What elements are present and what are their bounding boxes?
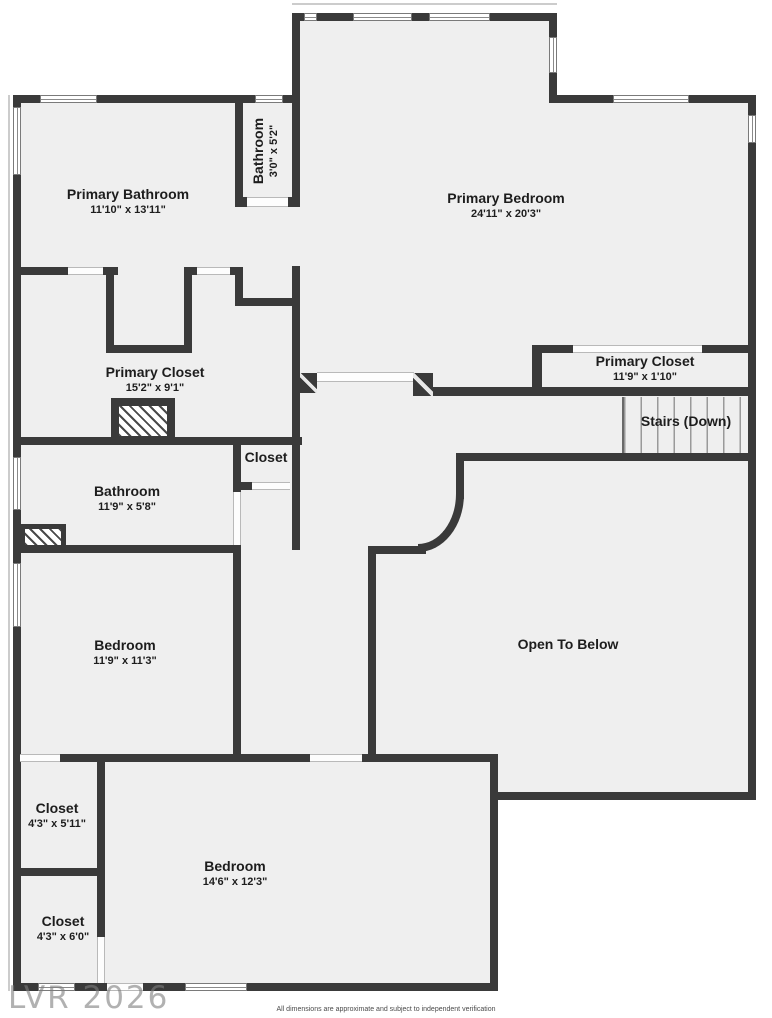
room-dims: 14'6" x 12'3" (203, 876, 268, 889)
room-dims: 4'3" x 6'0" (37, 931, 89, 944)
room-dims: 15'2" x 9'1" (106, 382, 205, 395)
door-opening (97, 937, 105, 983)
room-label-closet-lower: Closet 4'3" x 6'0" (37, 914, 89, 944)
room-name: Primary Closet (596, 354, 695, 370)
wall (292, 95, 300, 207)
wall (235, 95, 243, 200)
window-icon (549, 37, 557, 73)
room-name: Bathroom (94, 484, 160, 500)
room-label-primary-closet-left: Primary Closet 15'2" x 9'1" (106, 365, 205, 395)
window-icon (429, 13, 490, 21)
room-label-primary-closet-right: Primary Closet 11'9" x 1'10" (596, 354, 695, 384)
wall (292, 13, 557, 21)
wall (490, 754, 498, 991)
room-name: Bedroom (93, 638, 156, 654)
wall (13, 868, 105, 876)
room-label-closet-upper: Closet 4'3" x 5'11" (28, 801, 86, 831)
room-label-closet-hall: Closet (245, 450, 288, 466)
door-opening (247, 197, 288, 207)
wall (235, 298, 300, 306)
wall (368, 546, 426, 554)
room-dims: 11'9" x 1'10" (596, 371, 695, 384)
wall (13, 754, 498, 762)
room-dims: 11'10" x 13'11" (67, 204, 189, 217)
door-opening (233, 492, 241, 545)
window-icon (40, 95, 97, 103)
room-dims: 24'11" x 20'3" (447, 208, 564, 221)
wall (368, 546, 376, 762)
window-icon (13, 457, 21, 510)
door-opening (317, 372, 414, 382)
disclaimer-text: All dimensions are approximate and subje… (0, 1006, 772, 1013)
room-label-primary-bedroom: Primary Bedroom 24'11" x 20'3" (447, 191, 564, 221)
wall (430, 387, 756, 396)
hatched-fixture (111, 398, 175, 444)
window-icon (304, 13, 317, 21)
wall (233, 437, 241, 762)
room-name: Primary Closet (106, 365, 205, 381)
room-label-stairs-down: Stairs (Down) (641, 414, 731, 430)
room-label-bedroom-left: Bedroom 11'9" x 11'3" (93, 638, 156, 668)
room-label-open-to-below: Open To Below (518, 637, 619, 653)
window-icon (185, 983, 247, 991)
room-name: Bedroom (203, 859, 268, 875)
room-name: Stairs (Down) (641, 414, 731, 430)
wall (184, 267, 192, 353)
wall (292, 266, 300, 550)
window-icon (255, 95, 283, 103)
room-name: Open To Below (518, 637, 619, 653)
room-dims: 4'3" x 5'11" (28, 818, 86, 831)
wall (106, 267, 114, 353)
window-icon (613, 95, 689, 103)
window-icon (13, 563, 21, 627)
door-jamb (413, 373, 433, 396)
exterior-guide-line (292, 3, 557, 5)
floor-plan-canvas: Primary Bathroom 11'10" x 13'11" Bathroo… (0, 0, 772, 1018)
door-opening (20, 754, 60, 762)
room-label-bathroom: Bathroom 11'9" x 5'8" (94, 484, 160, 514)
exterior-guide-line (8, 95, 10, 991)
window-icon (748, 115, 756, 143)
door-opening (68, 267, 103, 275)
hatched-niche (20, 524, 66, 550)
wall (748, 95, 756, 800)
room-name: Primary Bathroom (67, 187, 189, 203)
floor-area (300, 21, 549, 103)
door-opening (197, 267, 230, 275)
wall (456, 453, 756, 461)
room-name: Primary Bedroom (447, 191, 564, 207)
room-name: Bathroom (251, 118, 267, 184)
window-icon (13, 107, 21, 175)
door-opening (310, 754, 362, 762)
room-name: Closet (28, 801, 86, 817)
room-dims: 11'9" x 11'3" (93, 655, 156, 668)
room-name: Closet (245, 450, 288, 466)
room-dims: 3'0" x 5'2" (268, 118, 281, 184)
wall (106, 345, 192, 353)
door-opening (573, 345, 702, 353)
room-label-primary-bathroom: Primary Bathroom 11'10" x 13'11" (67, 187, 189, 217)
room-label-bedroom-bottom: Bedroom 14'6" x 12'3" (203, 859, 268, 889)
room-dims: 11'9" x 5'8" (94, 501, 160, 514)
wall (292, 13, 300, 103)
room-label-bathroom-small: Bathroom 3'0" x 5'2" (251, 118, 281, 184)
wall (97, 754, 105, 944)
window-icon (353, 13, 412, 21)
door-jamb (300, 373, 317, 393)
wall (490, 792, 756, 800)
room-name: Closet (37, 914, 89, 930)
door-opening (252, 482, 290, 490)
